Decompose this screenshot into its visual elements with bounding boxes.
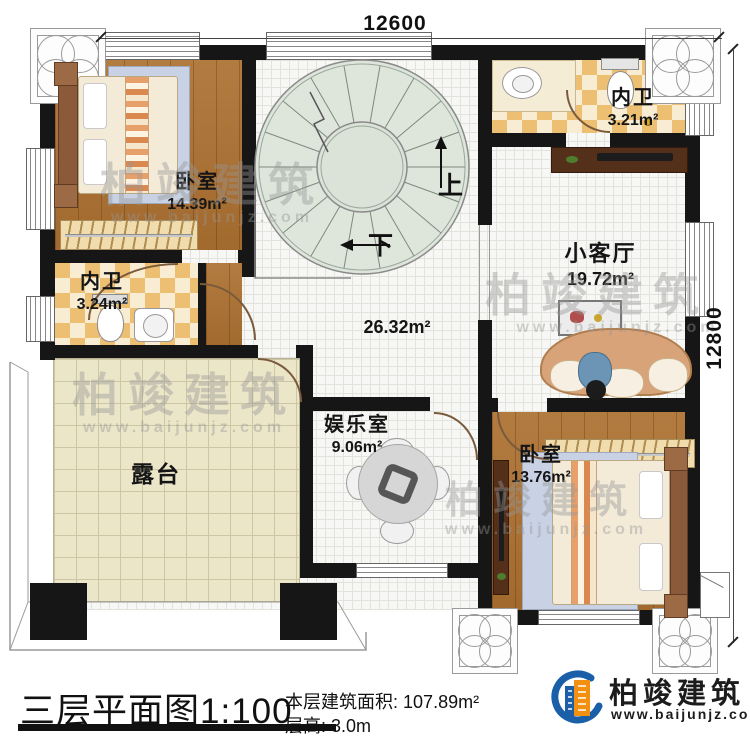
room-area: 14.39m² xyxy=(147,195,247,215)
bedroom-tl-wardrobe xyxy=(60,220,198,250)
floorplan-page: 12600 12800 xyxy=(0,0,750,738)
window xyxy=(26,148,55,230)
room-name: 小客厅 xyxy=(548,240,653,268)
label-bath-tl: 内卫 3.24m² xyxy=(52,270,152,315)
corner-ornament xyxy=(452,608,518,674)
window xyxy=(266,32,432,60)
up-arrow-icon xyxy=(435,136,447,149)
label-bedroom-br: 卧室 13.76m² xyxy=(491,443,591,488)
room-area: 3.24m² xyxy=(52,295,152,315)
tv xyxy=(499,489,504,561)
sofa-cushion xyxy=(648,358,688,392)
right-dimension-label: 12800 xyxy=(703,288,727,388)
person-head xyxy=(586,380,606,400)
plant xyxy=(566,156,578,163)
brand-logo: 柏竣建筑 www.baijunjz.com xyxy=(545,668,740,732)
terrace-column xyxy=(30,583,87,640)
bedpost xyxy=(54,184,78,208)
floor-height-info: 层高: 3.0m xyxy=(285,712,371,738)
opening-frame xyxy=(489,225,490,320)
bedroom-br-headboard xyxy=(670,455,688,610)
wall xyxy=(478,45,492,225)
toilet-tank xyxy=(601,58,639,70)
window xyxy=(98,32,200,60)
bedpost xyxy=(664,447,688,471)
label-living: 小客厅 19.72m² xyxy=(548,240,653,290)
label-terrace: 露台 xyxy=(106,460,206,489)
bedroom-tl-headboard xyxy=(58,70,78,200)
terrace-column xyxy=(280,583,337,640)
floor-height-label: 层高: xyxy=(285,716,326,736)
sink xyxy=(502,67,542,99)
opening-frame xyxy=(479,225,480,320)
bedpost xyxy=(54,62,78,86)
floor-area-value: 107.89m² xyxy=(403,692,479,712)
room-area: 3.21m² xyxy=(588,111,678,131)
room-name: 内卫 xyxy=(52,270,152,295)
plant xyxy=(497,573,506,580)
label-hall-area: 26.32m² xyxy=(347,316,447,339)
top-dimension-label: 12600 xyxy=(350,12,440,36)
floor-area-info: 本层建筑面积: 107.89m² xyxy=(285,688,479,714)
label-bedroom-tl: 卧室 14.39m² xyxy=(147,170,247,215)
window xyxy=(26,296,55,342)
stairs-up-label: 上 xyxy=(438,166,463,202)
tv-cabinet xyxy=(551,147,688,173)
room-name: 卧室 xyxy=(491,443,591,468)
wall xyxy=(492,133,566,147)
stairs-down-label: 下 xyxy=(368,226,393,262)
tv xyxy=(597,153,673,161)
floor-area-label: 本层建筑面积: xyxy=(285,692,398,712)
right-dimension-line xyxy=(733,50,734,643)
bedpost xyxy=(664,594,688,618)
pillow xyxy=(83,83,107,129)
label-bath-tr: 内卫 3.21m² xyxy=(588,86,678,131)
brand-url: www.baijunjz.com xyxy=(611,706,750,722)
room-name: 娱乐室 xyxy=(307,413,407,438)
pillow xyxy=(639,471,663,519)
room-area: 26.32m² xyxy=(347,316,447,339)
pillow xyxy=(83,139,107,185)
pillow xyxy=(639,543,663,591)
blanket-stripe xyxy=(125,77,149,193)
room-name: 卧室 xyxy=(147,170,247,195)
brand-logo-icon xyxy=(545,670,603,728)
flue-bay xyxy=(700,572,730,618)
label-entertainment: 娱乐室 9.06m² xyxy=(307,413,407,458)
down-arrow-icon xyxy=(340,239,353,251)
sofa xyxy=(540,328,692,396)
room-name: 内卫 xyxy=(588,86,678,111)
room-area: 19.72m² xyxy=(548,268,653,291)
room-name: 露台 xyxy=(106,460,206,489)
wall xyxy=(40,250,182,263)
room-area: 9.06m² xyxy=(307,438,407,458)
top-dimension-line xyxy=(100,38,722,39)
floor-height-value: 3.0m xyxy=(331,716,371,736)
room-area: 13.76m² xyxy=(491,468,591,488)
